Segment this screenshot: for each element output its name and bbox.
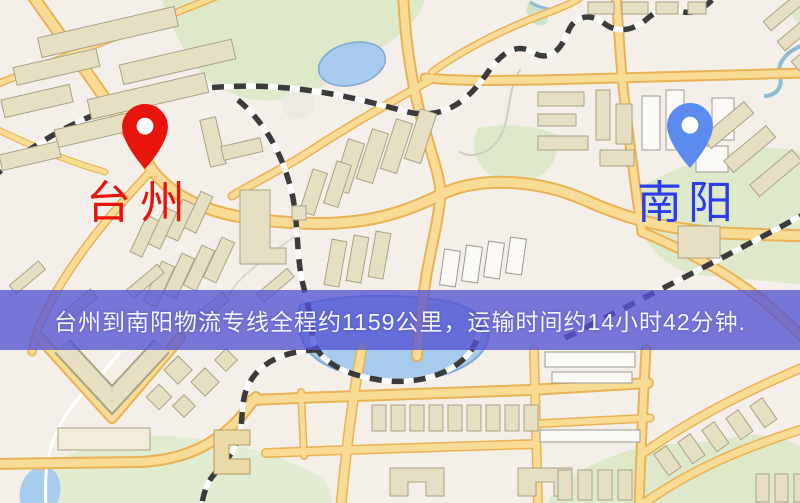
blue-pin-icon [667, 103, 713, 168]
map-canvas [0, 0, 800, 503]
red-pin-icon [122, 104, 168, 169]
route-info-banner: 台州到南阳物流专线全程约1159公里，运输时间约14小时42分钟. [0, 290, 800, 350]
destination-city-label: 南阳 [637, 180, 739, 225]
origin-city-label: 台州 [86, 180, 194, 225]
route-info-text: 台州到南阳物流专线全程约1159公里，运输时间约14小时42分钟. [54, 303, 746, 337]
map-image: 台州 南阳 台州到南阳物流专线全程约1159公里，运输时间约14小时42分钟. [0, 0, 800, 503]
